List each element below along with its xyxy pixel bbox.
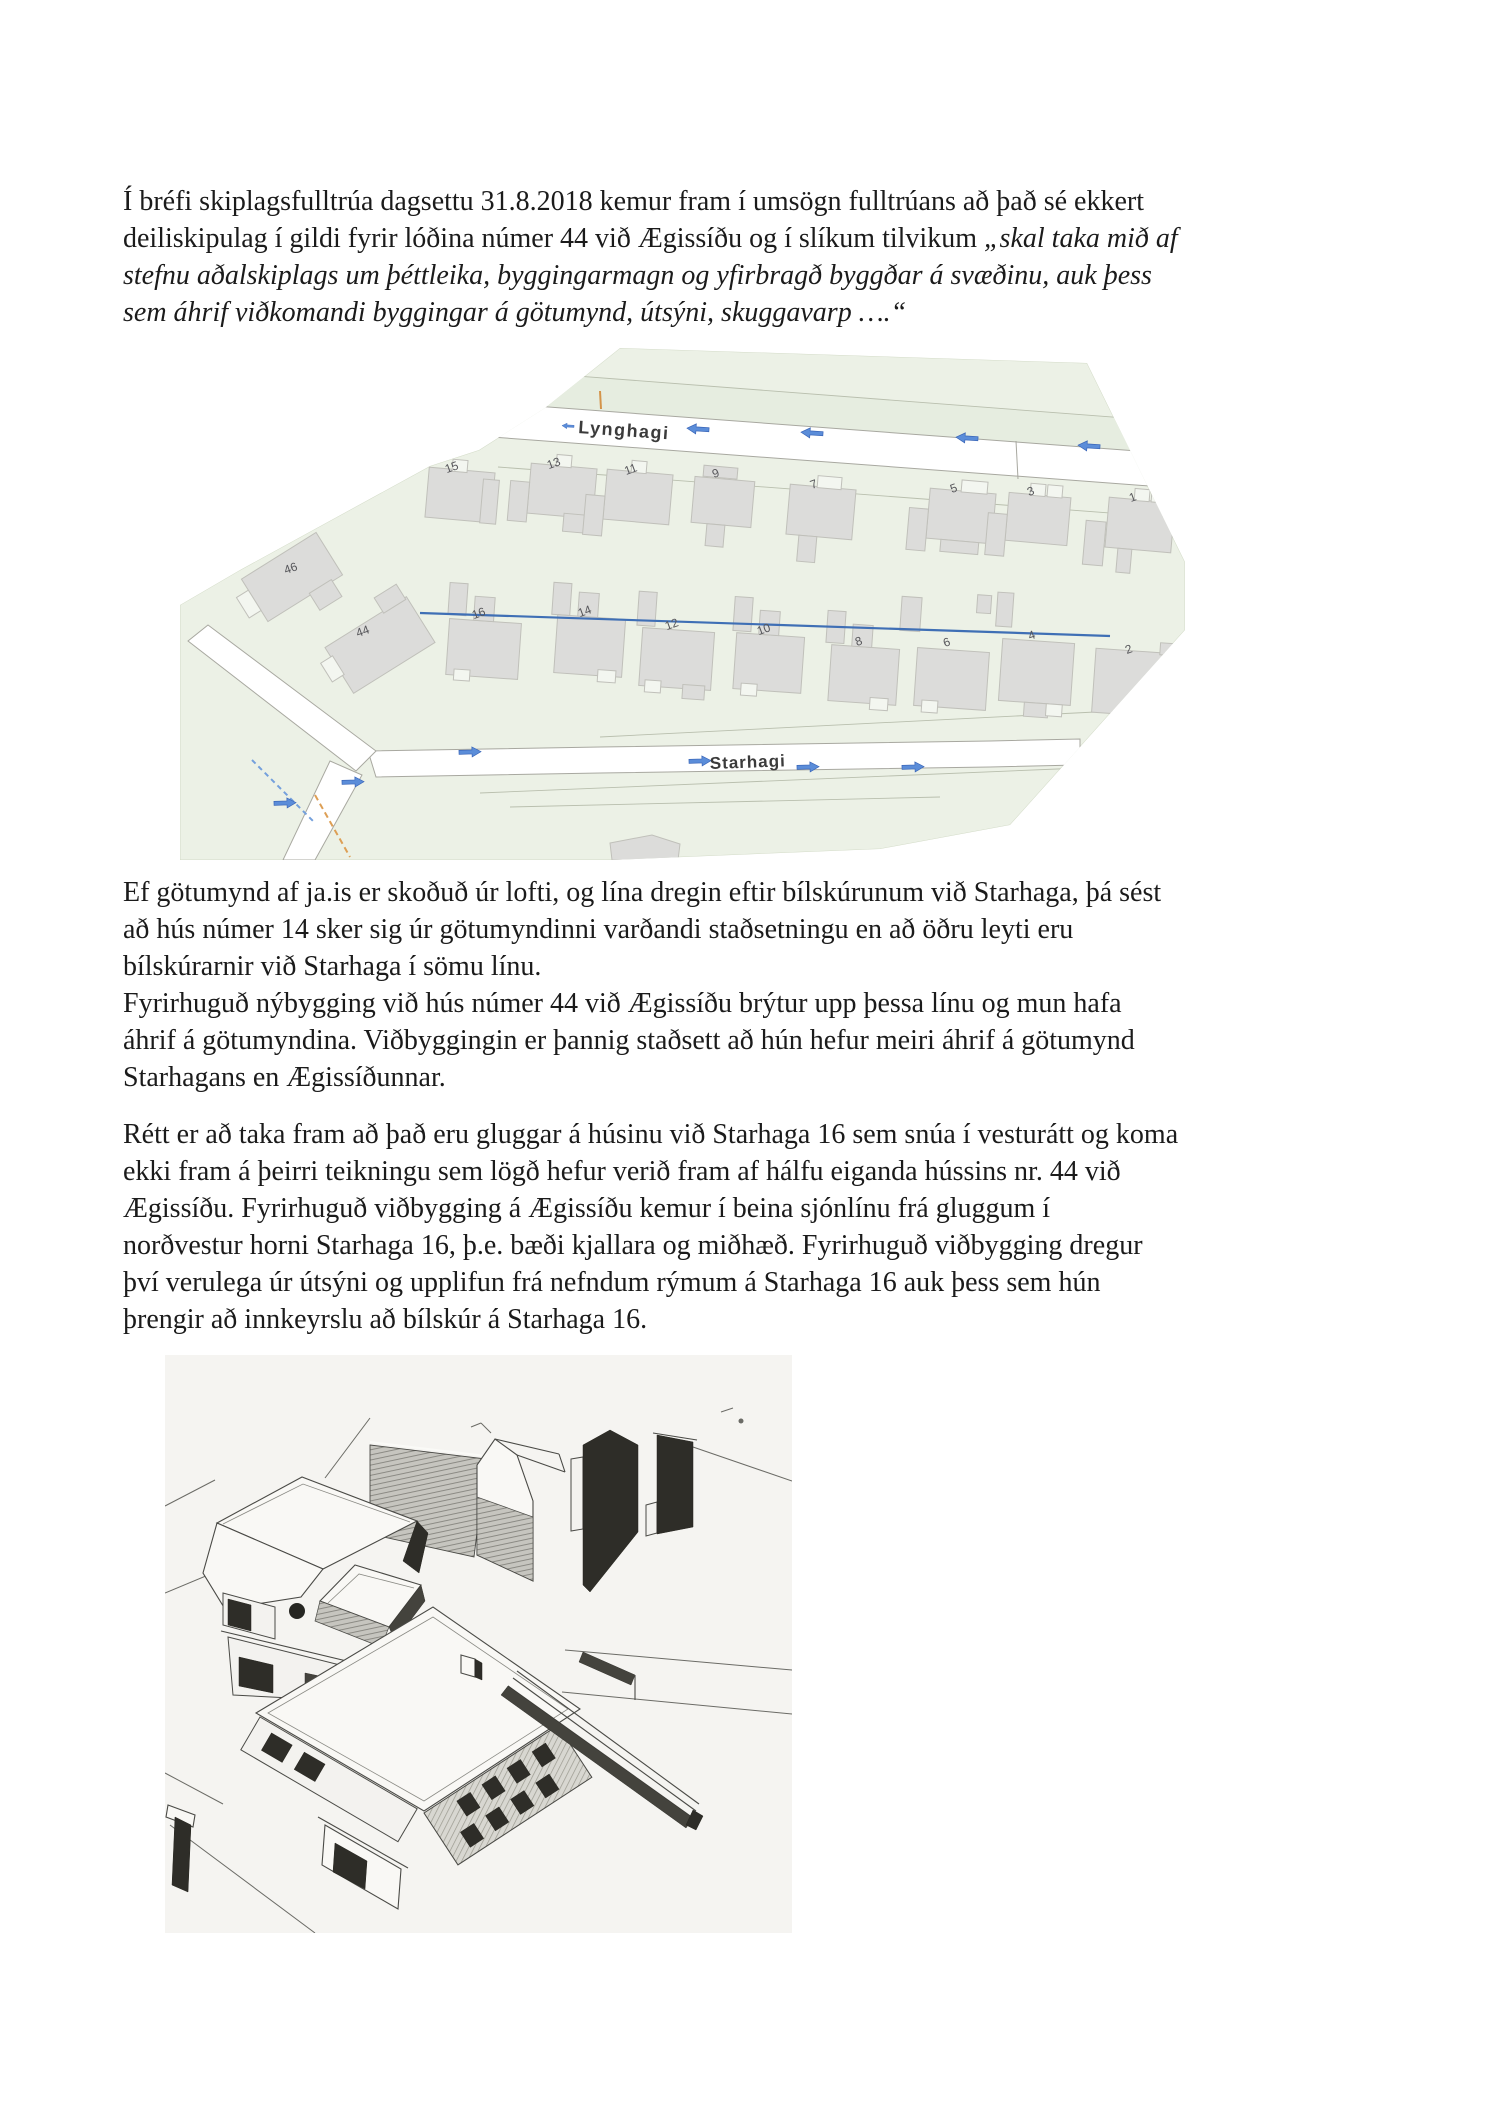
text-line: norðvestur horni Starhaga 16, þ.e. bæði …: [123, 1227, 1178, 1264]
text-line: að hús númer 14 sker sig úr götumyndinni…: [123, 911, 1161, 948]
site-map-figure: Lynghagi Starhagi 15 13 11 9 7 5 3 1 16 …: [180, 345, 1192, 860]
text-line: stefnu aðalskiplags um þéttleika, byggin…: [123, 257, 1178, 294]
site-map: Lynghagi Starhagi 15 13 11 9 7 5 3 1 16 …: [180, 345, 1192, 860]
text-line: Ef götumynd af ja.is er skoðuð úr lofti,…: [123, 874, 1161, 911]
parcel-line: [433, 345, 498, 405]
text-segment: deiliskipulag í gildi fyrir lóðina númer…: [123, 223, 984, 254]
text-line: Í bréfi skiplagsfulltrúa dagsettu 31.8.2…: [123, 183, 1178, 220]
text-line: deiliskipulag í gildi fyrir lóðina númer…: [123, 220, 1178, 257]
axonometric-drawing: [165, 1355, 792, 1933]
text-line: þrengir að innkeyrslu að bílskúr á Starh…: [123, 1301, 1178, 1338]
text-line: Starhagans en Ægissíðunnar.: [123, 1059, 1161, 1096]
axonometric-drawing-figure: [165, 1355, 792, 1933]
scanned-document-page: Í bréfi skiplagsfulltrúa dagsettu 31.8.2…: [0, 0, 1500, 2122]
utility-tick: [600, 391, 601, 409]
text-line: Fyrirhuguð nýbygging við hús númer 44 vi…: [123, 985, 1161, 1022]
streetview-paragraph: Ef götumynd af ja.is er skoðuð úr lofti,…: [123, 874, 1161, 1096]
street-label-starhagi: Starhagi: [709, 751, 786, 773]
text-line: Rétt er að taka fram að það eru gluggar …: [123, 1116, 1178, 1153]
quoted-italic-segment: „skal taka mið af: [984, 223, 1178, 254]
windows-paragraph: Rétt er að taka fram að það eru gluggar …: [123, 1116, 1178, 1338]
text-line: því verulega úr útsýni og upplifun frá n…: [123, 1264, 1178, 1301]
text-line: sem áhrif viðkomandi byggingar á götumyn…: [123, 294, 1178, 331]
roof-dot: [289, 1603, 305, 1619]
text-line: ekki fram á þeirri teikningu sem lögð he…: [123, 1153, 1178, 1190]
text-line: áhrif á götumyndina. Viðbyggingin er þan…: [123, 1022, 1161, 1059]
text-line: Ægissíðu. Fyrirhuguð viðbygging á Ægissí…: [123, 1190, 1178, 1227]
intro-paragraph: Í bréfi skiplagsfulltrúa dagsettu 31.8.2…: [123, 183, 1178, 331]
text-line: bílskúrarnir við Starhaga í sömu línu.: [123, 948, 1161, 985]
